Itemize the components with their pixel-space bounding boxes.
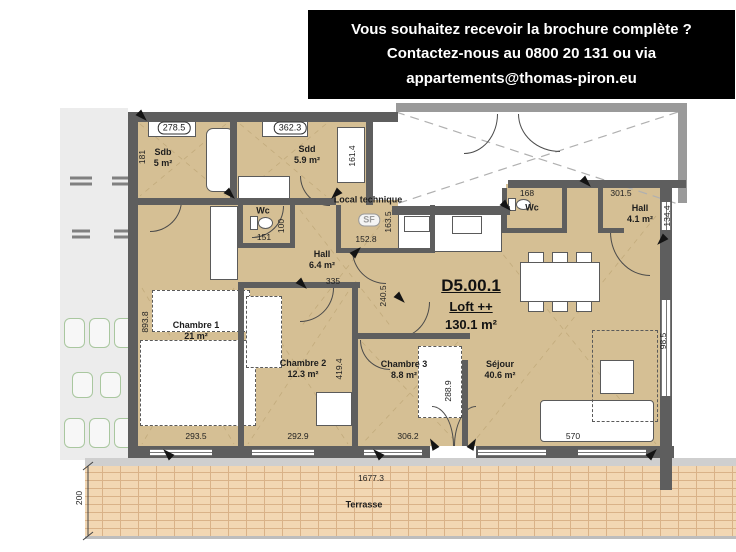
desk-chambre2 xyxy=(316,392,352,426)
door-arc xyxy=(464,114,498,154)
wall xyxy=(392,206,510,215)
car-shape xyxy=(100,372,121,398)
wall xyxy=(502,228,566,233)
car-shape xyxy=(89,418,110,448)
terrace-area xyxy=(85,466,736,536)
wall xyxy=(598,228,624,233)
wall xyxy=(352,288,358,448)
unit-area: 130.1 m² xyxy=(441,317,501,332)
car-shape xyxy=(64,418,85,448)
brochure-banner: Vous souhaitez recevoir la brochure comp… xyxy=(308,10,735,99)
floor-plan-page: Vous souhaitez recevoir la brochure comp… xyxy=(0,0,736,552)
dining-chair xyxy=(552,301,568,312)
apartment-floor-mid xyxy=(370,200,398,450)
car-shape xyxy=(89,318,110,348)
kitchen-hob xyxy=(404,216,430,232)
wall xyxy=(396,103,686,112)
wall xyxy=(562,188,567,233)
bed-chambre1-a xyxy=(152,290,250,332)
coffee-table xyxy=(600,360,634,394)
dining-chair xyxy=(528,252,544,263)
exterior-side-strip xyxy=(60,108,128,460)
banner-line-2: Contactez-nous au 0800 20 131 ou via xyxy=(387,46,656,63)
wall xyxy=(336,205,341,253)
wall xyxy=(358,333,470,339)
unit-label: D5.00.1 Loft ++ 130.1 m² xyxy=(441,276,501,332)
wall xyxy=(508,180,686,188)
car-shape xyxy=(72,372,93,398)
wall xyxy=(238,205,243,248)
car-shape xyxy=(64,318,85,348)
apartment-floor-ne xyxy=(506,184,664,214)
terrace-bottom-edge xyxy=(85,536,736,539)
wall xyxy=(678,103,687,203)
dining-table xyxy=(520,262,600,302)
bed-chambre3 xyxy=(418,346,462,418)
dining-chair xyxy=(576,301,592,312)
window xyxy=(478,449,546,456)
wall xyxy=(366,122,373,205)
washbasin-sdd xyxy=(262,120,308,137)
banner-line-1: Vous souhaitez recevoir la brochure comp… xyxy=(351,22,692,39)
banner-line-3: appartements@thomas-piron.eu xyxy=(406,71,637,88)
window xyxy=(661,202,671,230)
wall xyxy=(128,112,138,458)
wall xyxy=(238,288,244,448)
wall xyxy=(462,360,468,448)
bed-chambre2 xyxy=(246,296,282,368)
shower xyxy=(337,127,365,183)
wall xyxy=(290,205,295,248)
window xyxy=(578,449,646,456)
toilet-bowl-right xyxy=(516,199,531,210)
dining-chair xyxy=(576,252,592,263)
door-arc xyxy=(518,114,560,152)
dining-chair xyxy=(552,252,568,263)
dimension-200: 200 xyxy=(75,491,84,505)
wall xyxy=(598,188,603,233)
dining-chair xyxy=(528,301,544,312)
wall xyxy=(238,243,295,248)
window xyxy=(661,300,671,396)
wardrobe xyxy=(210,206,238,280)
wall xyxy=(128,112,398,122)
window-sill-band xyxy=(85,458,736,466)
wall xyxy=(430,205,435,253)
washbasin-sdb xyxy=(148,120,196,137)
window xyxy=(252,449,314,456)
unit-id: D5.00.1 xyxy=(441,276,501,296)
unit-type: Loft ++ xyxy=(441,299,501,314)
kitchen-sink xyxy=(452,216,482,234)
